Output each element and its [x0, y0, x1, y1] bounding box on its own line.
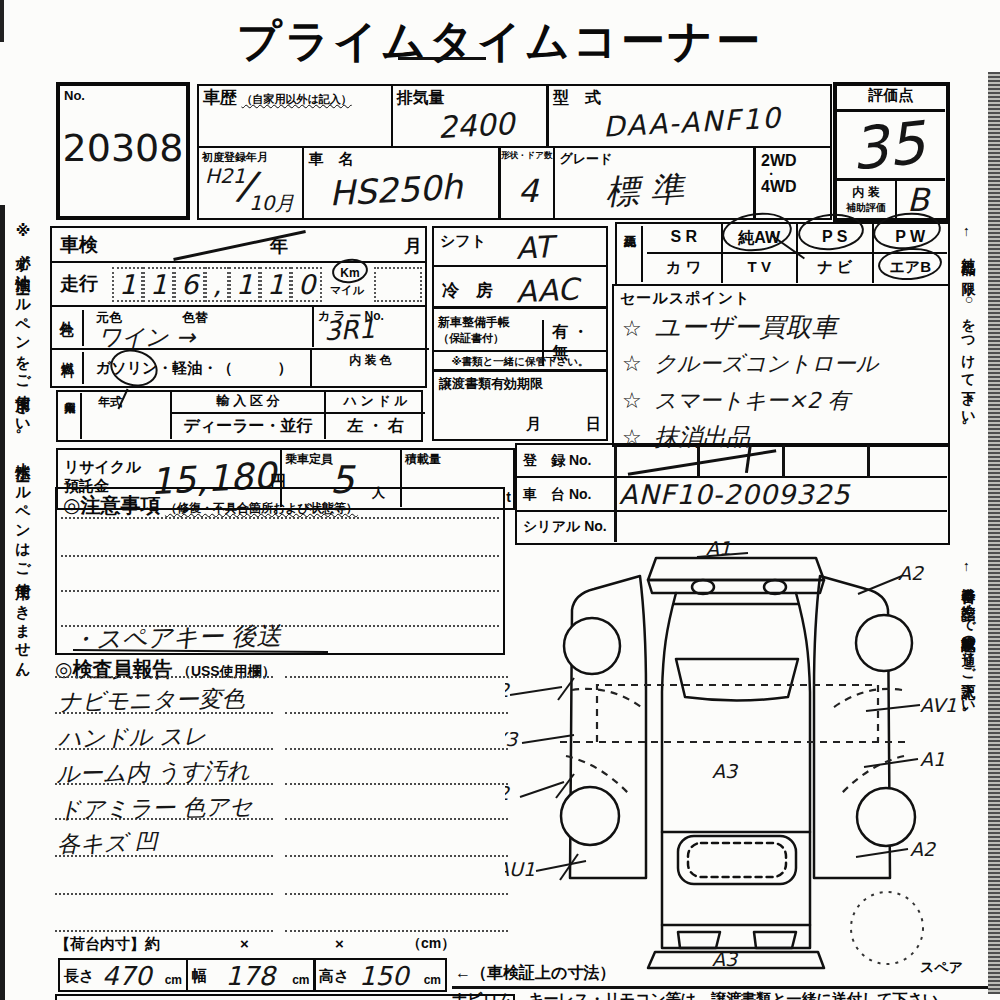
inspector-line [55, 676, 273, 678]
right-rear-wheel [857, 788, 915, 846]
auction-sheet: プライムタイムコーナー No. 20308 車歴 （自家用以外は記入） 排気量 … [0, 0, 1000, 1000]
inspector-line [285, 783, 508, 785]
import-label: 輸入車用 [62, 393, 82, 439]
right-front-wheel [856, 615, 912, 671]
inspector-entry: ドアミラー 色アセ [58, 791, 253, 825]
star-icon: ☆ [622, 316, 642, 341]
notes-line [61, 517, 499, 519]
fuel-label: 燃料 [58, 352, 84, 384]
spare-label: スペア [920, 959, 963, 975]
mileage-empty-cell [374, 267, 422, 302]
right-margin-note-genuine: ← 純正品に限り○をつけて下さい。 [960, 225, 978, 555]
damage-label-front: A1 [706, 537, 731, 559]
load-unit: t [506, 489, 511, 505]
label-tick [536, 861, 586, 871]
front-bumper [648, 558, 824, 580]
label-tick [866, 705, 920, 711]
windshield [676, 659, 798, 701]
first-registration-month: 10月 [249, 190, 294, 217]
mileage-digit: 0 [291, 267, 322, 302]
cargo-note-underline [452, 986, 988, 989]
genuine-item-tv: T V [723, 254, 799, 283]
displacement-value: 2400 [437, 106, 515, 145]
notes-line [61, 590, 499, 592]
star-icon: ☆ [622, 351, 642, 376]
inspector-entry: ハンドル スレ [58, 721, 207, 755]
notes-header: ◎注意事項 [63, 492, 160, 519]
interior-color-label: 内 装 色 [312, 352, 429, 369]
sales-point-item: ☆ クルーズコントロール [622, 349, 878, 379]
handle-value: 左 ・ 右 [326, 416, 425, 437]
load-label: 積載量 [405, 451, 517, 468]
damage-label-left-4: AU1 [505, 858, 535, 880]
registration-divider [867, 445, 870, 478]
registration-box: 登 録 No. 車 台 No. ANF10-2009325 シリアル No. [515, 443, 950, 545]
scan-edge-topleft [0, 0, 4, 42]
lot-number-label: No. [64, 88, 85, 103]
mileage-row: 走行 1 1 6 , 1 1 0 Km マイル [50, 261, 427, 307]
footer-note: ナビロム、キーレス・リモコン等は、譲渡書類と一緒に送付して下さい [452, 990, 988, 1000]
mileage-digit: 1 [260, 267, 291, 302]
interior-grade-label-cell: 内 装 補助評価 [837, 178, 897, 218]
score-label: 評価点 [869, 86, 914, 103]
lot-number-value: 20308 [60, 126, 186, 170]
color-no-cell: カ ラ ー No. 3R1 [312, 307, 427, 347]
history-label: 車歴 [203, 88, 237, 107]
score-box: 評価点 35 内 装 補助評価 B [833, 82, 950, 222]
left-rear-wheel [561, 787, 619, 845]
cargo-width-value: 178 [226, 961, 276, 991]
mileage-digit: 1 [143, 267, 174, 302]
exterior-color-label: 外色 [58, 310, 84, 346]
cargo-length-value: 470 [102, 961, 152, 991]
cargo-height-value: 150 [359, 961, 409, 991]
shaken-label: 車検 [60, 232, 98, 258]
damage-label-center: A3 [712, 760, 739, 782]
cargo-width-cell: 幅 178 cm [186, 958, 316, 992]
front-bumper-band [648, 580, 824, 593]
grade-value: 標 準 [603, 165, 684, 215]
year-type-label: 年式 [98, 394, 122, 411]
shaken-month-label: 月 [404, 234, 422, 258]
shift-cell: シフト AT [432, 226, 608, 267]
cargo-header-row: 【荷台内寸】約 × × （cm） [55, 935, 505, 957]
tail-light [754, 932, 796, 948]
chassis-no-label: 車 台 No. [523, 486, 591, 504]
import-class-cell: 輸 入 区 分 ディーラー・並行 [170, 392, 324, 439]
registration-row: 登 録 No. [517, 445, 947, 478]
label-tick [858, 576, 902, 594]
car-name-cell: 車 名 HS250h [302, 146, 501, 220]
ac-cell: 冷 房 AAC [432, 265, 608, 309]
inspector-line [285, 676, 508, 678]
inspector-line [285, 930, 508, 932]
damage-label-right-3: A1 [920, 748, 945, 770]
damage-label-right-1: A2 [898, 562, 925, 584]
inspector-line [285, 855, 508, 857]
right-margin-note-chassis: ← 車台番号は左詰めで車検証記載の通りご記入下さい。 [960, 560, 978, 980]
cargo-length-label: 長さ [64, 967, 94, 986]
shape-doors-cell: 形状・ドア数 4 [498, 146, 555, 220]
mileage-label: 走行 [60, 271, 98, 297]
damage-label-rear: A3 [712, 948, 739, 970]
lot-number-box: No. 20308 [56, 82, 190, 220]
booklet-cell: 新車整備手帳 （保証書付） 有 ・ 無 [432, 306, 608, 352]
inspector-entry: 各キズ 凹 [57, 827, 158, 860]
mile-unit: マイル [330, 283, 364, 298]
interior-grade-value-cell: B [897, 178, 945, 218]
genuine-item-kawa: カ ワ [647, 254, 723, 283]
dashed-arc [572, 689, 645, 710]
cargo-note: ←（車検証上の寸法） [455, 963, 615, 984]
cargo-width-cm: cm [292, 973, 309, 987]
damage-label-right-4: A2 [910, 838, 937, 860]
model-code-cell: 型 式 DAA-ANF10 [546, 84, 832, 148]
drive-4wd: 4WD [761, 178, 830, 196]
genuine-item-navi: ナ ビ [798, 254, 874, 283]
spare-tire-circle [851, 892, 923, 964]
label-tick [510, 687, 562, 695]
score-value: 35 [848, 108, 929, 183]
label-tick [856, 849, 908, 857]
transfer-day: 日 [586, 415, 601, 434]
cargo-height-cell: 高さ 150 cm [313, 958, 447, 992]
notes-line [61, 555, 499, 557]
left-front-wheel [564, 618, 620, 674]
cargo-height-cm: cm [424, 973, 441, 987]
mileage-digit: 1 [112, 267, 143, 302]
interior-color-cell: 内 装 色 [310, 348, 429, 388]
title-underline [398, 57, 486, 60]
cargo-length-cm: cm [165, 973, 182, 987]
registration-strikethrough-tick [745, 443, 752, 473]
inspector-line [285, 818, 508, 820]
mileage-digit: , [205, 267, 229, 302]
displacement-label: 排気量 [397, 88, 547, 109]
serial-no-label: シリアル No. [523, 518, 607, 536]
star-icon: ☆ [622, 388, 642, 413]
chassis-row: 車 台 No. ANF10-2009325 [517, 478, 947, 512]
notes-box: ◎注意事項 （修復・不具合箇所および状態等） ・スペアキー 後送 [55, 487, 505, 655]
shape-doors-value: 4 [518, 172, 538, 210]
transfer-label: 譲渡書類有効期限 [439, 375, 606, 393]
registration-label-divider [614, 478, 617, 542]
left-margin-note: ※必ず油性ボールペンをご使用下さい。 水性ボールペンはご使用できません。 [8, 222, 38, 992]
fuel-row: 燃料 ガソリン・軽油・（ ） 内 装 色 [50, 348, 427, 388]
cargo-x1: × [240, 935, 249, 952]
tail-light [678, 932, 720, 948]
first-registration-cell: 初度登録年月 H21 / 10月 [197, 146, 304, 220]
cargo-width-label: 幅 [192, 967, 207, 986]
interior-grade-label1: 内 装 [837, 184, 895, 201]
history-cell: 車歴 （自家用以外は記入） [197, 84, 393, 148]
sales-point-text: クルーズコントロール [654, 351, 878, 376]
cargo-height-label: 高さ [319, 967, 349, 986]
ac-value: AAC [515, 271, 579, 309]
dashed-arc [830, 689, 902, 710]
cargo-x2: × [335, 935, 344, 952]
sales-point-text: ユーザー買取車 [654, 312, 837, 342]
registration-no-label: 登 録 No. [523, 452, 591, 470]
interior-grade-label2: 補助評価 [837, 201, 895, 215]
genuine-item-sr: S R [647, 224, 723, 252]
import-class-label: 輸 入 区 分 [172, 392, 324, 414]
car-name-value: HS250h [328, 166, 464, 213]
cargo-header: 【荷台内寸】約 [55, 935, 160, 952]
shift-label: シフト [440, 232, 486, 251]
fuel-circle-mark [106, 345, 161, 392]
inspector-line [55, 930, 273, 932]
car-damage-diagram: A1 A2 AU2 AV1 AY3 A1 A3 A2 AU1 A2 A3 スペア [505, 535, 965, 985]
damage-label-left-3: A2 [505, 782, 511, 804]
mileage-digit: 1 [229, 267, 260, 302]
registration-strikethrough [628, 449, 777, 475]
drive-type-cell: 2WD ・ 4WD [753, 146, 832, 220]
registration-divider [782, 445, 785, 478]
inspector-line [285, 893, 508, 895]
inspector-entry: ナビモニター変色 [58, 683, 245, 717]
chassis-no-value: ANF10-2009325 [619, 479, 851, 510]
sales-points-label: セールスポイント [620, 289, 948, 308]
mileage-digit: 6 [174, 267, 205, 302]
car-name-label: 車 名 [309, 150, 499, 169]
grade-label: グレード [560, 150, 754, 168]
inspector-entry: ルーム内 うす汚れ [56, 755, 251, 789]
sales-point-item: ☆ スマートキー×2 有 [622, 386, 850, 416]
inspector-line [55, 893, 273, 895]
score-header: 評価点 [837, 86, 945, 112]
sales-points-box: セールスポイント ☆ ユーザー買取車 ☆ クルーズコントロール ☆ スマートキー… [612, 284, 950, 447]
drive-dot: ・ [765, 170, 830, 178]
history-note: （自家用以外は記入） [241, 93, 351, 105]
cargo-unit: （cm） [407, 935, 455, 953]
inspector-line [285, 712, 508, 714]
damage-label-right-2: AV1 [920, 694, 957, 716]
transfer-month: 月 [526, 415, 541, 434]
shaken-row: 車検 年 月 [50, 226, 427, 263]
scan-edge-right [988, 72, 1000, 994]
displacement-cell: 排気量 2400 [391, 84, 549, 148]
shift-value: AT [515, 229, 553, 266]
notes-header-note: （修復・不具合箇所および状態等） [165, 501, 358, 515]
door-dashed-box [597, 685, 878, 742]
page-title: プライムタイムコーナー [190, 12, 810, 64]
transfer-cell: 譲渡書類有効期限 月 日 [432, 369, 608, 441]
color-no-value: 3R1 [323, 314, 376, 347]
exterior-color-row: 外色 元色 色替 ワイン → カ ラ ー No. 3R1 [50, 305, 427, 350]
import-box: 輸入車用 年式 輸 入 区 分 ディーラー・並行 ハ ン ド ル 左 ・ 右 [56, 390, 423, 442]
grade-cell: グレード 標 準 [553, 146, 756, 220]
bottom-clipped-row [55, 994, 515, 1000]
damage-label-left-1: AU2 [505, 679, 511, 701]
damage-label-left-2: AY3 [505, 728, 519, 750]
registration-divider [614, 445, 617, 478]
handle-cell: ハ ン ド ル 左 ・ 右 [324, 392, 425, 439]
handle-label: ハ ン ド ル [326, 392, 425, 414]
inspector-line [285, 748, 508, 750]
keep-note: ※書類と一緒に保管下さい。 [434, 355, 606, 369]
sales-point-text: スマートキー×2 有 [654, 388, 850, 413]
cargo-length-cell: 長さ 470 cm [58, 958, 188, 992]
scan-edge-left [0, 205, 5, 1000]
rear-window [688, 843, 786, 877]
genuine-parts-label: 純正品 [621, 226, 643, 282]
import-class-value: ディーラー・並行 [172, 416, 324, 437]
ac-label: 冷 房 [442, 279, 493, 302]
shape-doors-label: 形状・ドア数 [501, 150, 553, 162]
sales-point-item: ☆ ユーザー買取車 [622, 310, 837, 345]
